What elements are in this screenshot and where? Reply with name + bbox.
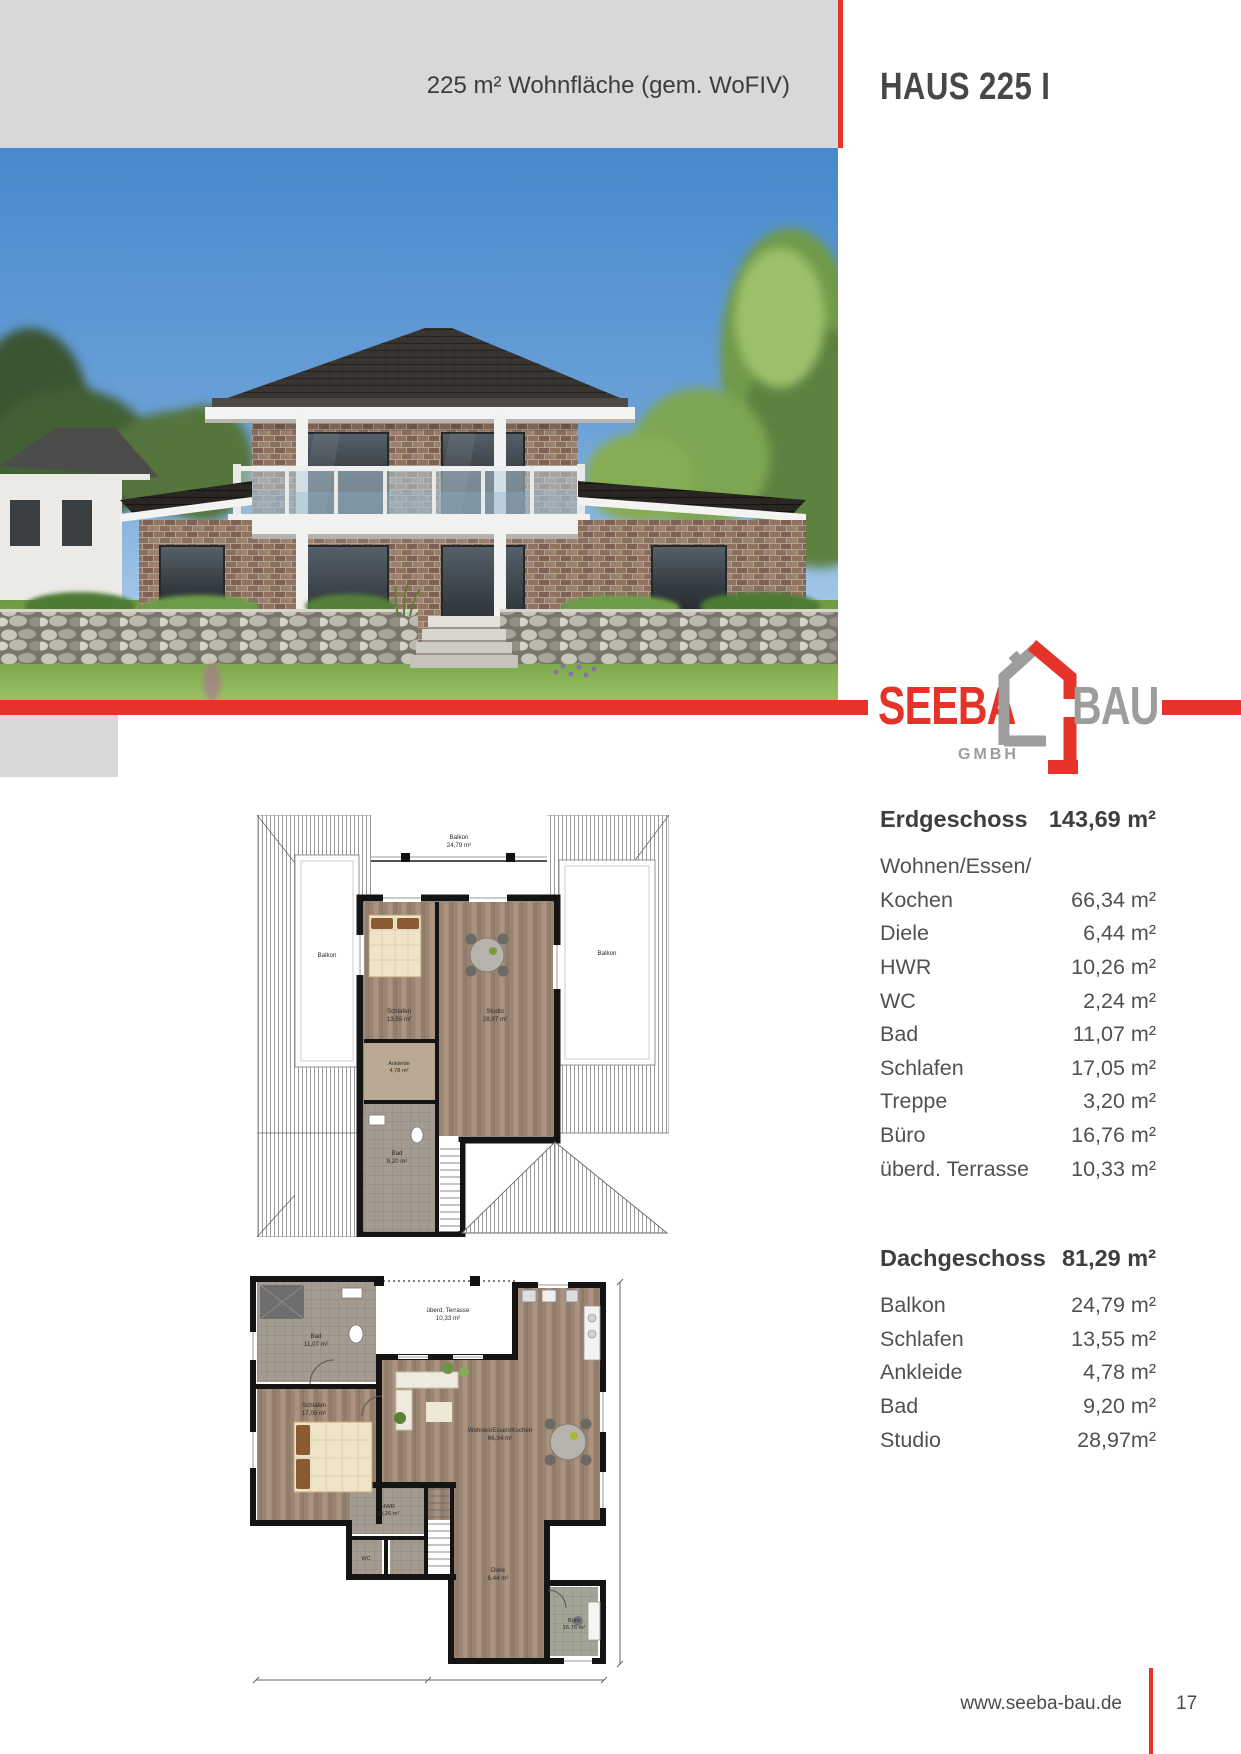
plan-label: Schlafen <box>387 1008 412 1015</box>
plan-label: Ankleide <box>388 1061 409 1067</box>
table-rows: Wohnen/Essen/Kochen66,34 m²Diele6,44 m²H… <box>880 850 1156 1186</box>
floorplan-ground: überd. Terrasse 10,33 m² Wohnen/Essen/Ko… <box>248 1272 628 1697</box>
room-area: 24,79 m² <box>1071 1293 1156 1318</box>
table-row: HWR10,26 m² <box>880 951 1156 985</box>
balcony-right <box>559 860 655 1065</box>
plan-label: Büro <box>568 1618 580 1624</box>
table-row: Büro16,76 m² <box>880 1119 1156 1153</box>
room-area: 6,44 m² <box>1083 921 1156 946</box>
plan-label: 66,34 m² <box>488 1435 512 1442</box>
brochure-page: 225 m² Wohnfläche (gem. WoFIV) HAUS 225 … <box>0 0 1241 1754</box>
floor-name: Erdgeschoss <box>880 806 1028 833</box>
page-number: 17 <box>1176 1693 1197 1715</box>
plan-label: 9,20 m² <box>387 1158 408 1165</box>
plan-label: Studio <box>486 1008 504 1015</box>
plan-label: 13,55 m² <box>387 1016 411 1023</box>
plan-label: 10,33 m² <box>436 1315 460 1322</box>
room-area: 16,76 m² <box>1071 1123 1156 1148</box>
room-area: 2,24 m² <box>1083 989 1156 1014</box>
room-label: Schlafen <box>880 1056 964 1081</box>
room-label: Büro <box>880 1123 925 1148</box>
plan-label: 24,79 m² <box>447 842 471 849</box>
floor-total: 81,29 m² <box>1062 1245 1156 1272</box>
room-label: Studio <box>880 1428 941 1453</box>
plan-label: 10,26 m² <box>377 1511 400 1517</box>
floor-name: Dachgeschoss <box>880 1245 1046 1272</box>
plan-label: 28,97 m² <box>483 1016 507 1023</box>
plan-label: Diele <box>491 1567 506 1574</box>
table-row: Schlafen17,05 m² <box>880 1052 1156 1086</box>
plan-label: 11,07 m² <box>304 1341 328 1348</box>
room-label: Ankleide <box>880 1360 962 1385</box>
plan-label: 17,05 m² <box>302 1410 326 1417</box>
table-dachgeschoss: Dachgeschoss 81,29 m² Balkon24,79 m²Schl… <box>880 1245 1156 1457</box>
table-row: Balkon24,79 m² <box>880 1289 1156 1323</box>
room-label: WC <box>880 989 916 1014</box>
table-row: Treppe3,20 m² <box>880 1085 1156 1119</box>
logo-word-bau: BAU <box>1072 679 1159 733</box>
room-label: HWR <box>880 955 931 980</box>
floor-total: 143,69 m² <box>1049 806 1156 833</box>
room-area: 13,55 m² <box>1071 1327 1156 1352</box>
plan-label: Balkon <box>318 952 337 959</box>
room-label: Bad <box>880 1022 918 1047</box>
room-label: Bad <box>880 1394 918 1419</box>
red-band-right <box>1162 700 1241 715</box>
front-lawn <box>0 664 838 700</box>
room-area: 28,97m² <box>1077 1428 1156 1453</box>
room-label: Kochen <box>880 888 953 913</box>
logo-word-gmbh: GMBH <box>958 746 1019 764</box>
room-label: Balkon <box>880 1293 946 1318</box>
living-area-note: 225 m² Wohnfläche (gem. WoFIV) <box>0 72 790 100</box>
room-area: 10,26 m² <box>1071 955 1156 980</box>
header-red-divider <box>838 0 843 148</box>
balcony-left <box>295 855 359 1067</box>
room-area: 9,20 m² <box>1083 1394 1156 1419</box>
room-label: Diele <box>880 921 929 946</box>
room-area: 4,78 m² <box>1083 1360 1156 1385</box>
plan-label: überd. Terrasse <box>427 1307 470 1314</box>
table-row: Diele6,44 m² <box>880 917 1156 951</box>
room-area: 11,07 m² <box>1073 1022 1156 1047</box>
table-row: Wohnen/Essen/ <box>880 850 1156 884</box>
table-row: Bad11,07 m² <box>880 1018 1156 1052</box>
room-area: 17,05 m² <box>1071 1056 1156 1081</box>
footer-red-divider <box>1149 1668 1153 1754</box>
room-area: 10,33 m² <box>1071 1157 1156 1182</box>
plan-label: 4,78 m² <box>390 1068 409 1074</box>
floorplan-upper: Balkon 24,79 m² Balkon Balkon Schlafen 1… <box>257 815 669 1237</box>
table-row: Bad9,20 m² <box>880 1390 1156 1424</box>
plan-label: Bad <box>310 1333 322 1340</box>
plan-label: Schlafen <box>302 1402 327 1409</box>
table-title-row: Erdgeschoss 143,69 m² <box>880 806 1156 833</box>
plan-label: 16,76 m² <box>563 1625 586 1631</box>
gray-strip-bottom-left <box>0 715 118 777</box>
table-rows: Balkon24,79 m²Schlafen13,55 m²Ankleide4,… <box>880 1289 1156 1457</box>
room-area: 66,34 m² <box>1071 888 1156 913</box>
table-title-row: Dachgeschoss 81,29 m² <box>880 1245 1156 1272</box>
table-row: Ankleide4,78 m² <box>880 1356 1156 1390</box>
page-title: HAUS 225 I <box>880 66 1050 109</box>
table-erdgeschoss: Erdgeschoss 143,69 m² Wohnen/Essen/Koche… <box>880 806 1156 1186</box>
room-label: Schlafen <box>880 1327 964 1352</box>
room-label: Wohnen/Essen/ <box>880 854 1031 879</box>
table-row: Schlafen13,55 m² <box>880 1323 1156 1357</box>
table-row: WC2,24 m² <box>880 984 1156 1018</box>
plan-label: Bad <box>391 1150 403 1157</box>
table-row: Studio28,97m² <box>880 1423 1156 1457</box>
room-label: überd. Terrasse <box>880 1157 1029 1182</box>
lower-roof-hip <box>462 1142 667 1233</box>
table-row: überd. Terrasse10,33 m² <box>880 1152 1156 1186</box>
plan-label: 6,44 m² <box>488 1575 509 1582</box>
website-url: www.seeba-bau.de <box>880 1693 1122 1715</box>
red-band-left <box>0 700 868 715</box>
plan-label: Balkon <box>450 834 469 841</box>
room-area: 3,20 m² <box>1083 1089 1156 1114</box>
house-rendering-photo <box>0 148 838 700</box>
room-label: Treppe <box>880 1089 947 1114</box>
plan-label: Wohnen/Essen/Kochen <box>468 1427 533 1434</box>
table-row: Kochen66,34 m² <box>880 884 1156 918</box>
plan-label: Balkon <box>598 950 617 957</box>
plan-label: WC <box>362 1556 371 1562</box>
plan-label: HWR <box>381 1504 395 1510</box>
